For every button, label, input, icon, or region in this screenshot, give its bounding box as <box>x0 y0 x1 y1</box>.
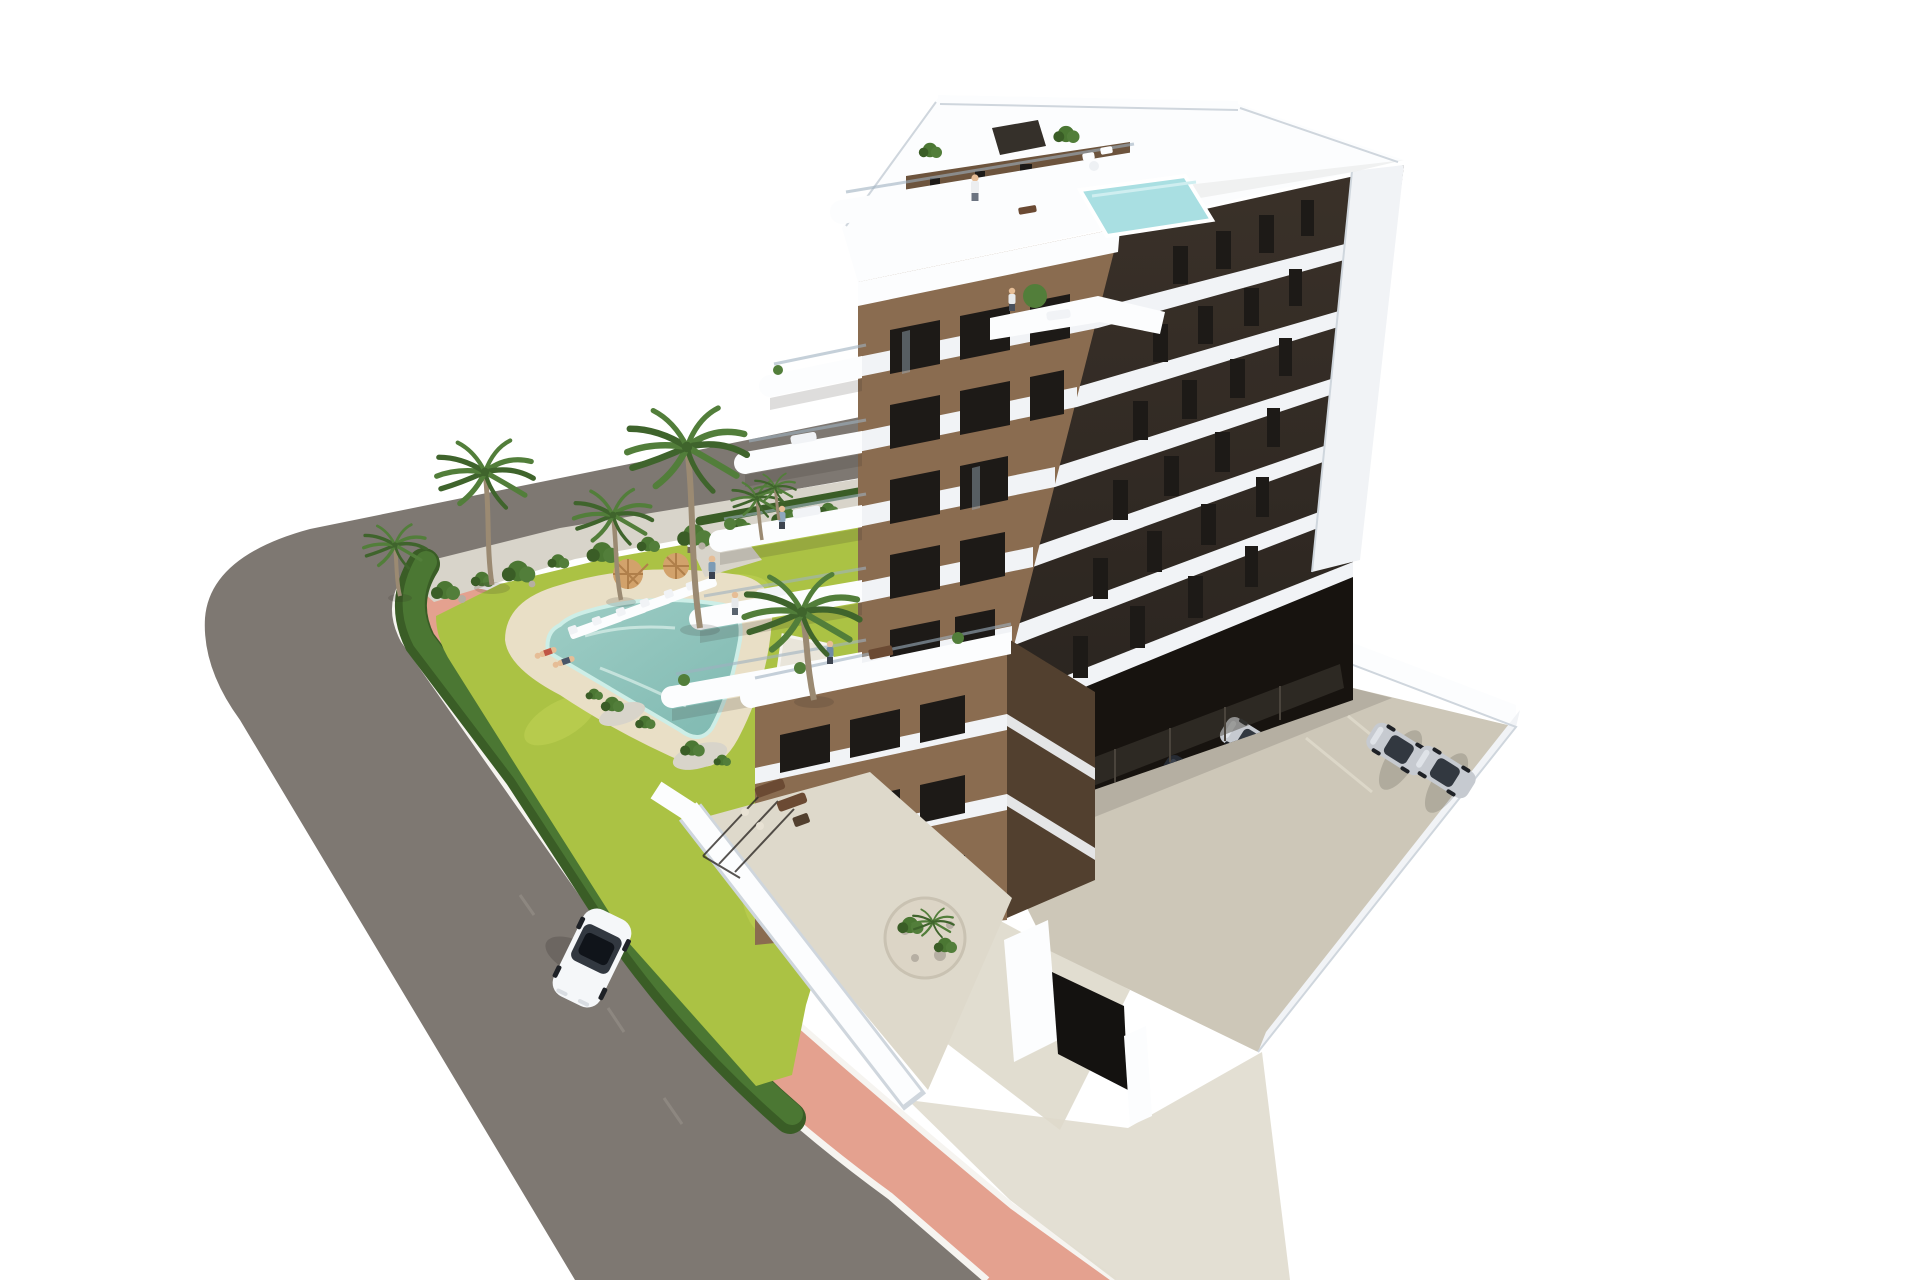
balcony <box>759 345 866 410</box>
render-canvas: Aerial 3D rendering of a modern seven-st… <box>0 0 1920 1280</box>
person <box>709 556 716 579</box>
render-illustration <box>0 0 1920 1280</box>
round-planter <box>885 898 965 978</box>
person <box>732 592 739 615</box>
person <box>1009 288 1016 311</box>
person <box>971 174 979 201</box>
